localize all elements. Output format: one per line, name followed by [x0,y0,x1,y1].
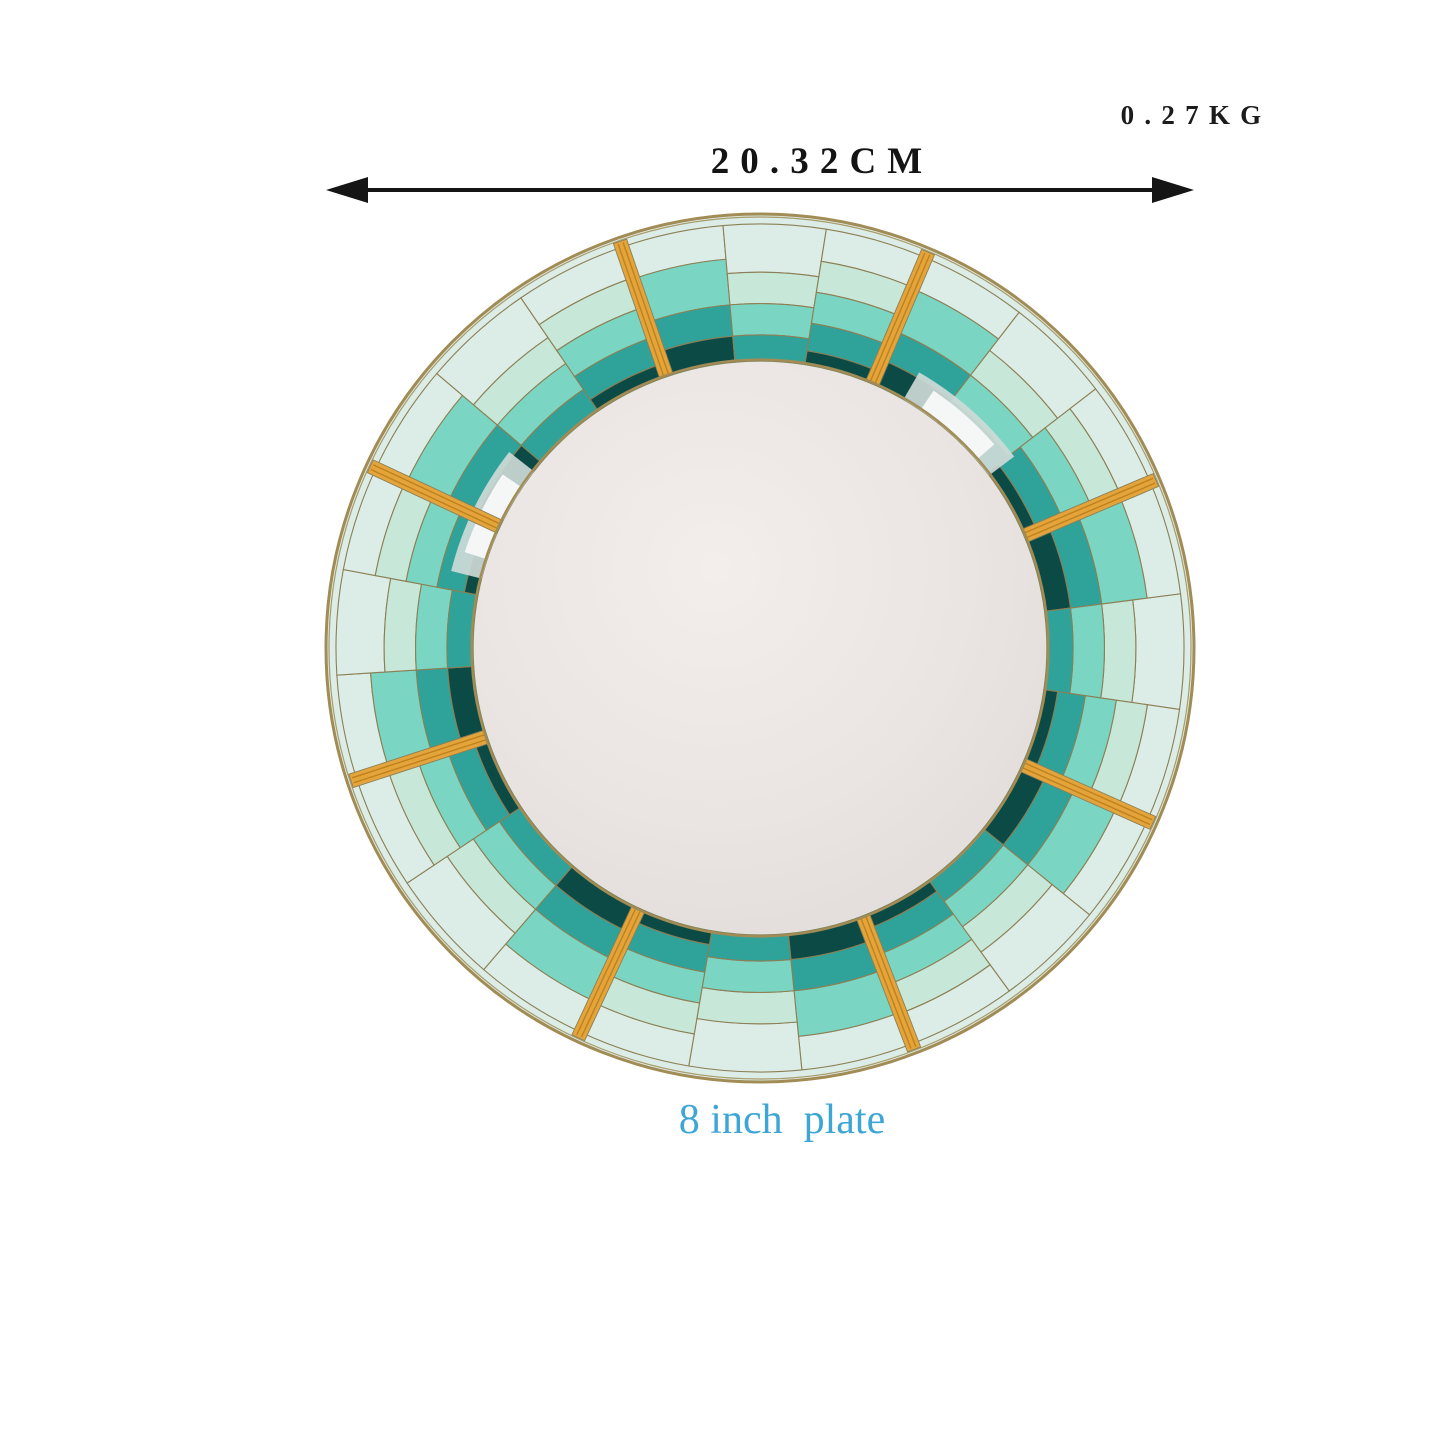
dimension-arrow [326,174,1194,206]
product-caption: 8 inch plate [679,1096,885,1144]
product-image-canvas: 0.27KG 20.32CM 8 inch plate [0,0,1445,1445]
arrow-line [334,188,1186,192]
weight-label: 0.27KG [1121,100,1272,131]
arrow-right-head-icon [1152,177,1194,203]
plate-image [324,212,1196,1084]
